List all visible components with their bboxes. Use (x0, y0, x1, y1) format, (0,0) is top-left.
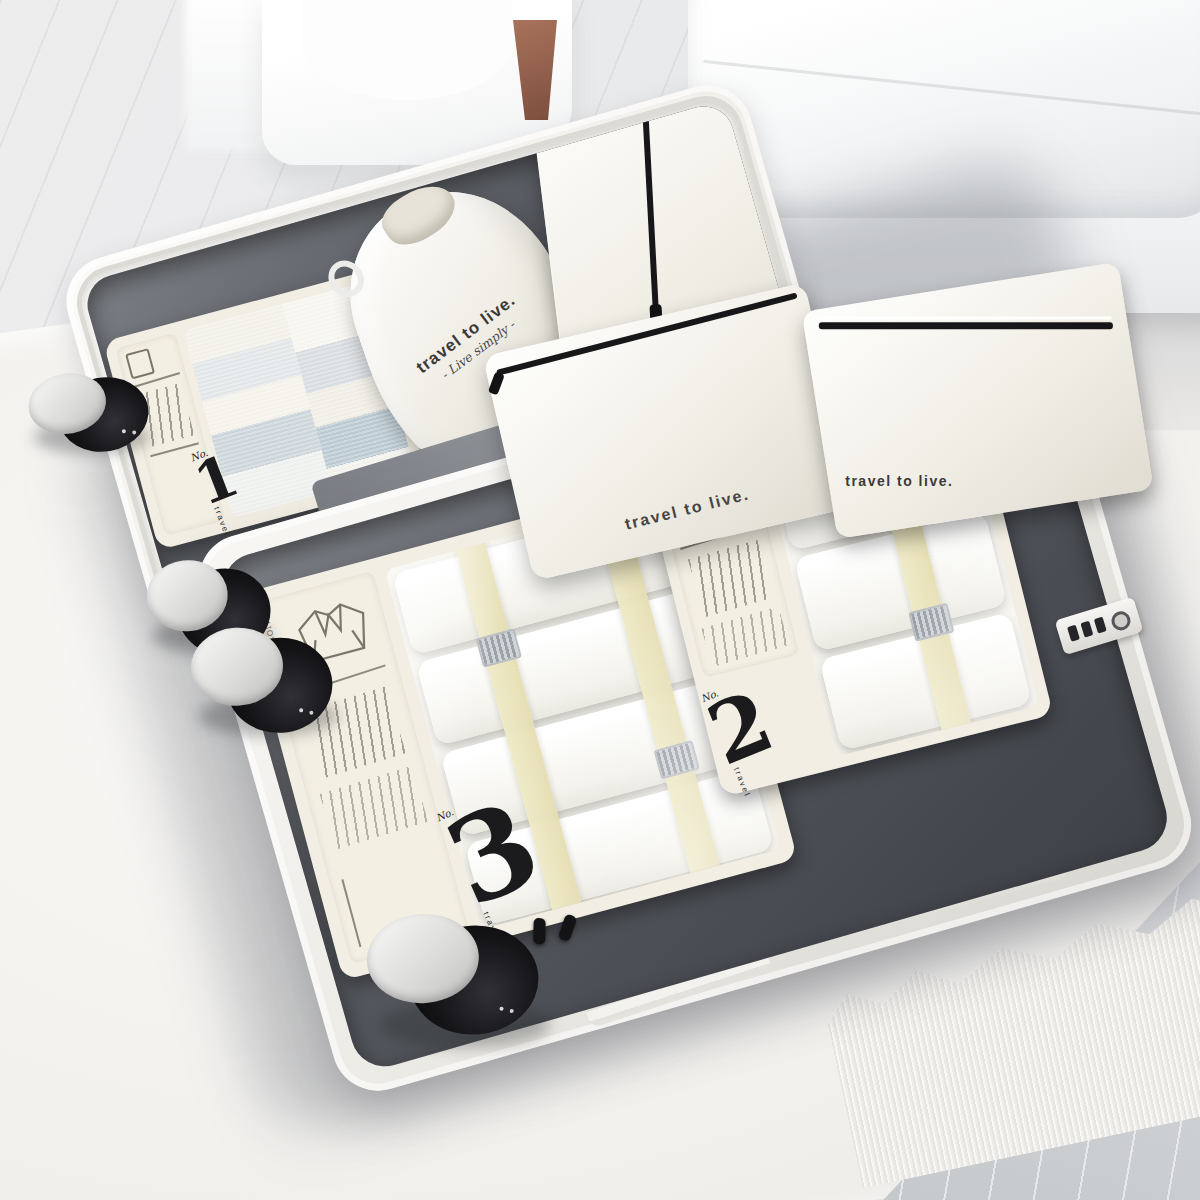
label-text-lines (688, 540, 774, 618)
side-pouch-text: travel to live. (845, 473, 953, 489)
living-room-scene: No. 1 travel travel to live. - Live simp… (0, 0, 1200, 1200)
shoe-bag-zipper (641, 99, 658, 306)
pouch-piping (817, 316, 1111, 319)
lock-dial (1080, 621, 1093, 638)
spinner-wheel (188, 621, 335, 739)
lock-dial (1094, 617, 1107, 634)
pouch-zipper (819, 322, 1113, 329)
lock-dial (1067, 625, 1080, 642)
spinner-wheel (364, 906, 542, 1042)
keyhole-icon (1109, 609, 1133, 633)
